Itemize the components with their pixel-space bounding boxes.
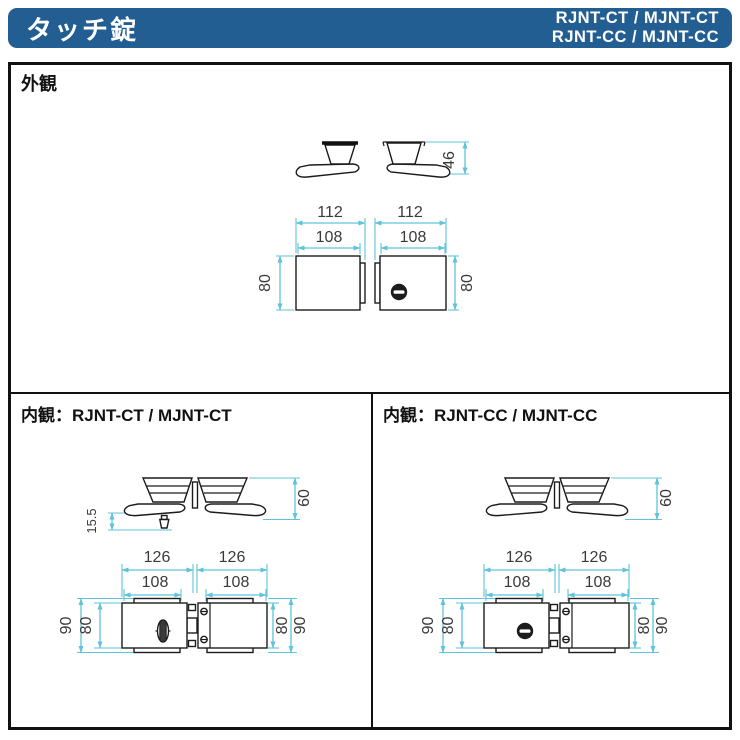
dim-15-5-label: 15.5	[84, 508, 99, 533]
dim-80-left-label: 80	[78, 617, 95, 635]
lever-blade-right	[567, 504, 627, 516]
dim-90-left-label: 90	[60, 617, 75, 635]
dim-108-left-label: 108	[142, 574, 169, 591]
keyhole-icon	[518, 624, 533, 639]
keyhole-icon	[392, 285, 407, 300]
dim-90-right-label: 90	[292, 617, 309, 635]
dim-108-left-label: 108	[316, 229, 343, 246]
interior-cc-section-label: 内観：RJNT-CC / MJNT-CC	[383, 401, 597, 426]
lever-blade-left	[486, 504, 546, 516]
vertical-divider	[371, 392, 373, 727]
lever-blade-left	[124, 504, 184, 516]
lever-right-top	[383, 142, 450, 177]
header-bar: タッチ錠 RJNT-CT / MJNT-CT RJNT-CC / MJNT-CC	[8, 8, 732, 48]
dim-108-right-label: 108	[223, 574, 250, 591]
dim-80-right-label: 80	[636, 617, 653, 635]
dim-108-left-label: 108	[504, 574, 531, 591]
lever-base-left	[505, 478, 554, 502]
spindle	[193, 482, 198, 508]
interior-cc-top-view: 60	[486, 478, 675, 520]
lever-blade-right	[205, 504, 265, 516]
exterior-top-view: 46	[296, 142, 469, 177]
dim-126-left-label: 126	[506, 549, 533, 566]
interior-cc-drawing: 60 126 126 108	[422, 448, 682, 690]
interior-ct-drawing: 15.5 60 126	[60, 448, 320, 690]
product-title: タッチ錠	[26, 10, 138, 47]
spindle	[555, 482, 560, 508]
exterior-case-left	[296, 256, 365, 310]
model-line2: RJNT-CC / MJNT-CC	[552, 28, 719, 47]
exterior-section-label: 外観	[21, 70, 57, 96]
interior-ct-front-view: 126 126 108 108 90 80	[60, 549, 309, 653]
interior-ct-section-label: 内観：RJNT-CT / MJNT-CT	[21, 401, 232, 426]
dim-112-right-label: 112	[397, 204, 423, 221]
lever-base-left	[143, 478, 192, 502]
dim-90-right-label: 90	[654, 617, 671, 635]
dim-126-left-label: 126	[144, 549, 171, 566]
exterior-front-view: 112 108 112 108 80 80	[257, 204, 476, 310]
dim-126-right-label: 126	[219, 549, 246, 566]
dim-108-right-label: 108	[400, 229, 427, 246]
latch-parts	[187, 605, 197, 647]
lever-base-right	[560, 478, 609, 502]
exterior-case-right	[375, 256, 446, 310]
push-button	[160, 516, 169, 529]
dim-60-label: 60	[296, 489, 313, 507]
lever-left-top	[296, 143, 359, 177]
dim-80-right-label: 80	[459, 274, 476, 292]
exterior-drawing: 46 112 108	[250, 126, 490, 326]
latch-parts	[549, 605, 559, 647]
dim-90-left-label: 90	[422, 617, 437, 635]
dim-80-left-label: 80	[440, 617, 457, 635]
dim-80-right-label: 80	[274, 617, 291, 635]
dim-112-left-label: 112	[317, 204, 343, 221]
horizontal-divider	[11, 392, 729, 394]
interior-case-left	[122, 603, 187, 648]
dim-108-right-label: 108	[585, 574, 612, 591]
dim-60-label: 60	[658, 489, 675, 507]
interior-cc-front-view: 126 126 108 108 90 80	[422, 549, 671, 653]
model-codes: RJNT-CT / MJNT-CT RJNT-CC / MJNT-CC	[552, 9, 719, 46]
interior-case-right	[198, 603, 267, 648]
catalog-page: タッチ錠 RJNT-CT / MJNT-CT RJNT-CC / MJNT-CC…	[0, 0, 740, 740]
interior-ct-top-view: 15.5 60	[84, 478, 313, 534]
dim-126-right-label: 126	[581, 549, 608, 566]
lever-base-right	[198, 478, 247, 502]
interior-case-right	[560, 603, 629, 648]
dim-80-left-label: 80	[257, 274, 274, 292]
model-line1: RJNT-CT / MJNT-CT	[552, 9, 719, 28]
interior-case-left	[484, 603, 549, 648]
